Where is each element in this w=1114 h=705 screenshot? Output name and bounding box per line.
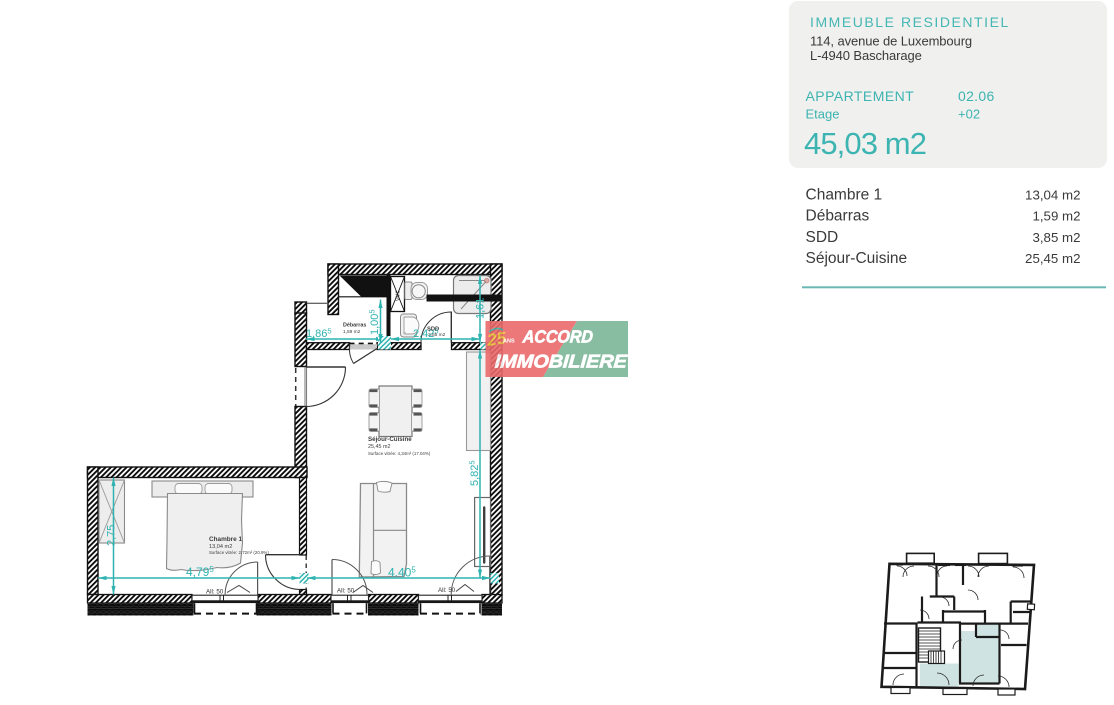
svg-text:IMMOBILIERE: IMMOBILIERE — [494, 351, 628, 372]
svg-text:25,45 m2: 25,45 m2 — [1025, 251, 1080, 266]
svg-text:Chambre 1: Chambre 1 — [806, 187, 883, 204]
svg-text:Débarras: Débarras — [806, 208, 870, 225]
svg-text:Etage: Etage — [806, 107, 840, 122]
svg-text:Séjour-Cuisine: Séjour-Cuisine — [806, 250, 908, 267]
svg-text:2,75: 2,75 — [106, 525, 118, 546]
svg-text:4,795: 4,795 — [186, 565, 214, 579]
svg-text:Surface vitrée: 4,34m² (17.04%: Surface vitrée: 4,34m² (17.04%) — [368, 451, 431, 456]
svg-text:02.06: 02.06 — [958, 88, 995, 104]
svg-text:Chambre 1: Chambre 1 — [209, 536, 242, 543]
svg-text:IMMEUBLE RESIDENTIEL: IMMEUBLE RESIDENTIEL — [810, 14, 1010, 30]
svg-text:114, avenue de Luxembourg: 114, avenue de Luxembourg — [810, 34, 972, 49]
svg-text:13,04 m2: 13,04 m2 — [1025, 188, 1080, 203]
svg-text:1,61: 1,61 — [475, 298, 487, 319]
svg-text:1,59 m2: 1,59 m2 — [1032, 209, 1080, 224]
svg-text:3,85 m2: 3,85 m2 — [1032, 230, 1080, 245]
svg-text:All: 50: All: 50 — [438, 587, 456, 594]
svg-text:L-4940 Bascharage: L-4940 Bascharage — [810, 48, 922, 63]
svg-text:Débarras: Débarras — [343, 323, 366, 329]
svg-text:All: 50: All: 50 — [337, 588, 355, 595]
svg-text:SDD: SDD — [427, 327, 439, 333]
svg-text:3,85 m2: 3,85 m2 — [428, 332, 446, 338]
svg-text:All: 50: All: 50 — [206, 589, 224, 596]
svg-text:25,45 m2: 25,45 m2 — [368, 444, 390, 450]
svg-text:ACCORD: ACCORD — [521, 327, 594, 347]
svg-text:APPARTEMENT: APPARTEMENT — [806, 88, 915, 104]
svg-text:5,825: 5,825 — [468, 460, 482, 486]
svg-text:1,005: 1,005 — [368, 309, 382, 335]
svg-text:SDD: SDD — [806, 229, 839, 246]
svg-text:Séjour-Cuisine: Séjour-Cuisine — [368, 436, 412, 443]
svg-text:Surface vitrée: 2.72m² (20.9%): Surface vitrée: 2.72m² (20.9%) — [209, 550, 269, 555]
svg-text:1,59 m2: 1,59 m2 — [343, 329, 361, 335]
svg-text:+02: +02 — [958, 107, 980, 122]
svg-text:VMC: VMC — [396, 290, 402, 302]
svg-text:1.865: 1.865 — [306, 327, 332, 341]
svg-text:45,03 m2: 45,03 m2 — [804, 126, 926, 161]
svg-text:ANS: ANS — [503, 339, 515, 345]
